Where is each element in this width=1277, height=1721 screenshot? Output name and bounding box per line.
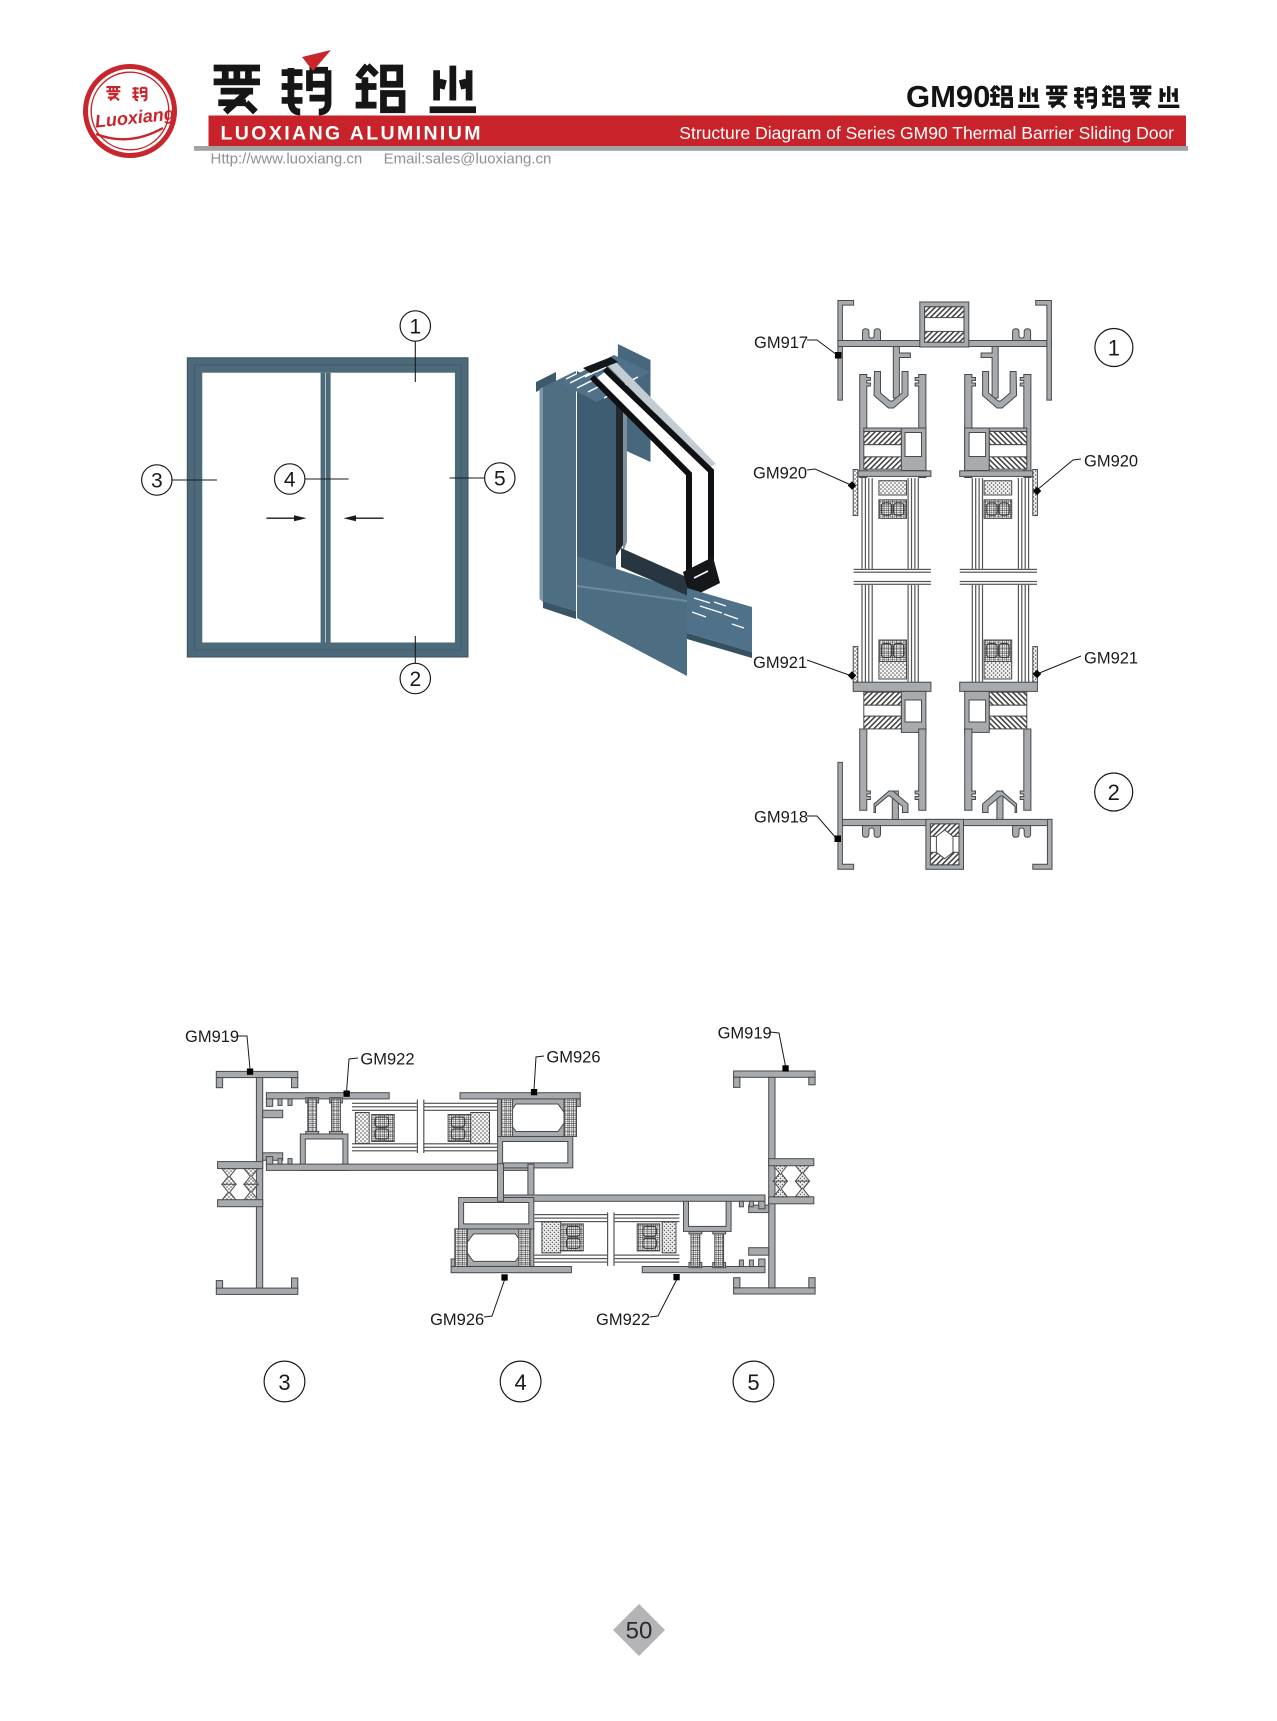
svg-text:GM90: GM90 bbox=[906, 79, 990, 114]
svg-text:5: 5 bbox=[747, 1370, 759, 1395]
svg-text:LUOXIANG ALUMINIUM: LUOXIANG ALUMINIUM bbox=[221, 123, 483, 145]
svg-text:3: 3 bbox=[278, 1370, 290, 1395]
svg-text:GM922: GM922 bbox=[360, 1051, 414, 1069]
svg-text:GM920: GM920 bbox=[1084, 453, 1138, 471]
svg-text:GM917: GM917 bbox=[754, 334, 808, 352]
svg-text:50: 50 bbox=[626, 1618, 653, 1645]
svg-text:Http://www.luoxiang.cn: Http://www.luoxiang.cn bbox=[211, 151, 363, 168]
svg-text:5: 5 bbox=[494, 468, 506, 491]
svg-text:GM926: GM926 bbox=[546, 1049, 600, 1067]
svg-text:Structure Diagram of Series GM: Structure Diagram of Series GM90 Thermal… bbox=[679, 123, 1174, 143]
svg-text:1: 1 bbox=[409, 316, 421, 339]
svg-text:GM919: GM919 bbox=[718, 1025, 772, 1043]
svg-text:GM919: GM919 bbox=[185, 1028, 239, 1046]
svg-text:4: 4 bbox=[514, 1370, 526, 1395]
svg-text:GM921: GM921 bbox=[1084, 650, 1138, 668]
svg-text:GM918: GM918 bbox=[754, 809, 808, 827]
svg-text:GM920: GM920 bbox=[753, 465, 807, 483]
svg-text:1: 1 bbox=[1108, 336, 1120, 361]
svg-text:2: 2 bbox=[1108, 780, 1120, 805]
svg-text:GM921: GM921 bbox=[753, 654, 807, 672]
svg-text:2: 2 bbox=[409, 668, 421, 691]
svg-text:GM926: GM926 bbox=[430, 1311, 484, 1329]
svg-text:4: 4 bbox=[284, 469, 296, 492]
svg-text:Luoxiang: Luoxiang bbox=[94, 103, 176, 131]
svg-text:3: 3 bbox=[151, 470, 163, 493]
svg-text:Email:sales@luoxiang.cn: Email:sales@luoxiang.cn bbox=[384, 151, 552, 168]
svg-text:GM922: GM922 bbox=[596, 1311, 650, 1329]
